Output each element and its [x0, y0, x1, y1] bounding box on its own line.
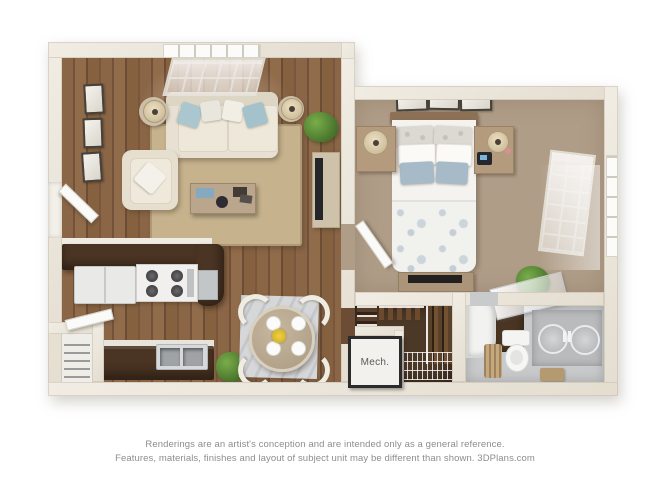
burner: [171, 285, 183, 297]
toilet-seat: [510, 350, 523, 365]
place-setting-plate: [291, 316, 306, 331]
blue-tray: [196, 188, 214, 198]
table-lamp: [143, 100, 166, 123]
bathroom-doorway: [470, 292, 498, 306]
television: [408, 275, 462, 283]
place-setting-plate: [266, 341, 281, 356]
wall-art-frame: [83, 83, 105, 114]
disclaimer-line-2: Features, materials, finishes and layout…: [0, 452, 650, 466]
alarm-clock: [477, 152, 492, 165]
dishwasher: [198, 270, 218, 300]
interior-wall-closet-bathroom: [452, 292, 466, 382]
window-light-pool: [540, 165, 600, 270]
refrigerator: [74, 266, 136, 304]
television: [315, 158, 323, 220]
bedroom-doorway: [341, 224, 355, 270]
floor-plan: Mech.: [0, 0, 650, 488]
wall-art-frame: [82, 118, 103, 149]
door-handle: [563, 331, 566, 342]
door-handle: [568, 331, 571, 342]
table-lamp: [363, 130, 388, 155]
clock-screen: [480, 155, 487, 160]
mech-closet-label: Mech.: [361, 357, 390, 368]
flower-centerpiece: [272, 329, 286, 343]
burner: [171, 270, 183, 282]
entry-closet-wall-right: [92, 322, 104, 382]
armchair: [122, 150, 178, 210]
fridge-door-seam: [104, 267, 106, 303]
throw-pillow: [200, 100, 223, 123]
wall-art-frame: [81, 151, 103, 182]
double-sink: [156, 344, 208, 370]
disclaimer-line-1: Renderings are an artist's conception an…: [0, 438, 650, 452]
round-mirror: [570, 325, 600, 355]
wire-shelf-rack: [64, 344, 90, 378]
disclaimer: Renderings are an artist's conception an…: [0, 438, 650, 466]
bed-pillow-blue: [435, 161, 468, 185]
sink-basin: [183, 348, 203, 366]
exterior-wall-top-bedroom: [341, 86, 618, 100]
place-setting-plate: [291, 341, 306, 356]
coffee-table: [190, 183, 256, 214]
toilet-bowl: [505, 344, 529, 372]
decor-bowl: [216, 196, 228, 208]
throw-pillow: [221, 99, 244, 122]
bath-stool: [540, 368, 564, 381]
bed-pillow-blue: [399, 161, 434, 185]
burner: [146, 285, 158, 297]
sofa: [166, 92, 278, 158]
burner: [146, 270, 158, 282]
sink-basin: [160, 348, 180, 366]
mech-closet: Mech.: [348, 336, 402, 388]
floor-plan-screenshot: Mech. Renderings are an artist's concept…: [0, 0, 650, 488]
window-glass-reflection: [162, 58, 265, 96]
closet-shoe-shelf: [379, 306, 424, 320]
table-lamp: [281, 98, 303, 120]
bedroom-window: [606, 155, 618, 257]
living-room-window: [163, 44, 261, 58]
exterior-wall-bottom: [48, 382, 618, 396]
range-control-panel: [187, 269, 194, 297]
potted-plant: [304, 112, 338, 142]
floral-duvet: [392, 200, 476, 272]
bed: [392, 120, 476, 270]
stove-range: [136, 264, 198, 302]
laundry-basket: [484, 344, 502, 378]
flower-decor: [505, 148, 511, 154]
stacked-books: [240, 194, 253, 204]
